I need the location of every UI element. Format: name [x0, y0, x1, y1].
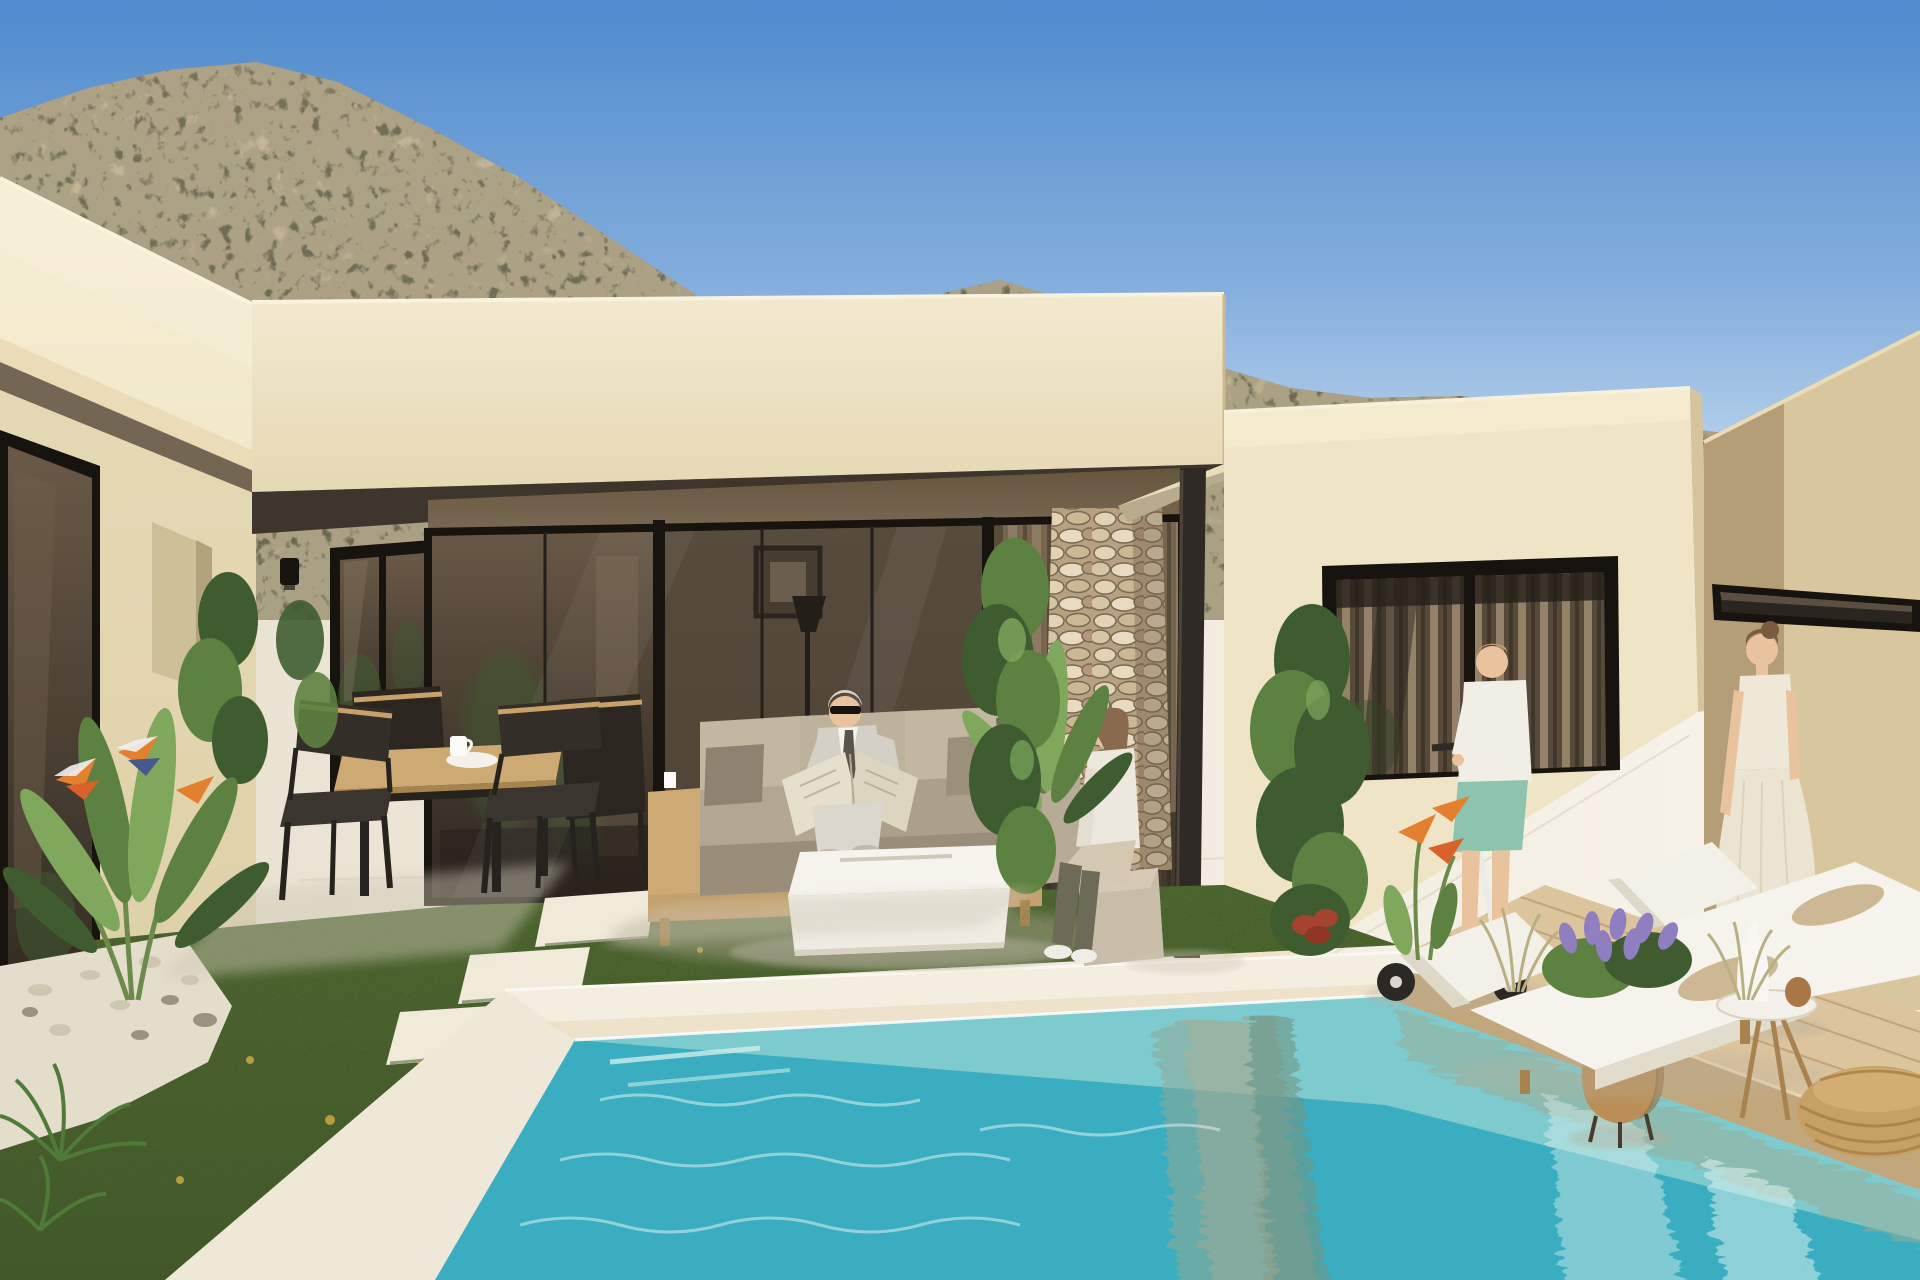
villa-exterior-render — [0, 0, 1920, 1280]
terrace-roof-fascia — [252, 294, 1224, 492]
small-brown-vase — [1785, 977, 1811, 1007]
render-canvas — [0, 0, 1920, 1280]
